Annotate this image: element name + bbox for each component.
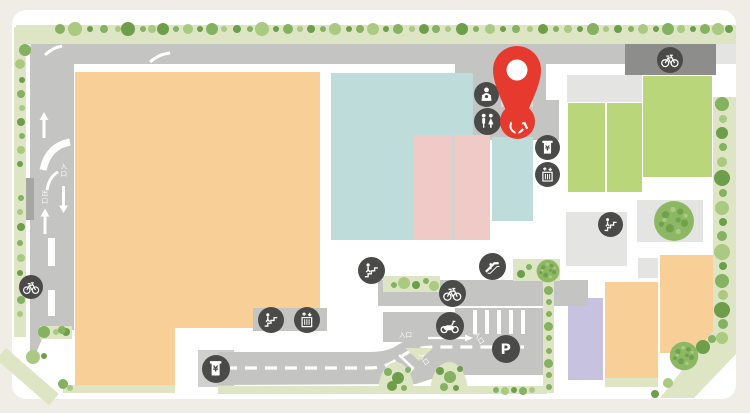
tree bbox=[307, 25, 315, 33]
tree bbox=[140, 26, 146, 32]
tree bbox=[17, 240, 23, 246]
tree bbox=[444, 371, 456, 383]
building-orange-2 bbox=[605, 282, 658, 378]
tree bbox=[273, 26, 279, 32]
escalator-icon[interactable] bbox=[479, 253, 506, 280]
tree bbox=[677, 25, 685, 33]
tree bbox=[708, 335, 716, 343]
tree bbox=[393, 24, 403, 34]
elevator-glyph bbox=[538, 165, 557, 184]
building-teal-2 bbox=[492, 137, 533, 221]
tree bbox=[714, 302, 730, 318]
tree bbox=[329, 23, 341, 35]
tree bbox=[719, 189, 727, 197]
location-pin[interactable] bbox=[489, 43, 545, 143]
motorcycle-icon[interactable] bbox=[436, 312, 464, 340]
tree bbox=[100, 25, 108, 33]
tree bbox=[719, 115, 727, 123]
tree bbox=[715, 274, 729, 288]
tree bbox=[320, 26, 326, 32]
tree bbox=[546, 335, 552, 341]
tree bbox=[367, 23, 379, 35]
atm-icon[interactable] bbox=[202, 355, 230, 383]
tree bbox=[529, 387, 535, 393]
stall-line bbox=[509, 310, 513, 334]
bicycle-icon[interactable] bbox=[657, 47, 683, 73]
atm-glyph bbox=[205, 358, 226, 379]
tree bbox=[440, 383, 448, 391]
tree bbox=[423, 278, 429, 284]
tree bbox=[638, 24, 648, 34]
tree bbox=[651, 390, 659, 398]
tree bbox=[501, 387, 509, 395]
tree bbox=[17, 118, 25, 126]
tree bbox=[700, 24, 710, 34]
building-gray-slab bbox=[567, 75, 642, 102]
tree bbox=[456, 23, 468, 35]
stairs-icon[interactable] bbox=[598, 212, 623, 237]
tree bbox=[15, 59, 25, 69]
tree bbox=[17, 270, 23, 276]
tree bbox=[500, 26, 506, 32]
tree bbox=[197, 26, 203, 32]
pin-icon bbox=[489, 43, 545, 139]
tree bbox=[67, 385, 73, 391]
parking-glyph bbox=[495, 338, 516, 359]
building-green-1 bbox=[568, 103, 605, 192]
elevator-glyph bbox=[297, 310, 317, 330]
tree bbox=[183, 24, 193, 34]
green-strip-under-orange2 bbox=[605, 378, 658, 387]
tree bbox=[405, 367, 411, 373]
stall-line bbox=[497, 310, 501, 334]
tree bbox=[603, 26, 609, 32]
tree bbox=[716, 127, 728, 139]
tree bbox=[546, 384, 552, 390]
tree bbox=[255, 22, 269, 36]
tree bbox=[473, 26, 479, 32]
tree bbox=[412, 281, 420, 289]
tree bbox=[436, 367, 444, 375]
tree bbox=[512, 25, 520, 33]
stairs-glyph bbox=[261, 310, 281, 330]
tree bbox=[719, 143, 727, 151]
tree bbox=[546, 299, 552, 305]
tree bbox=[17, 161, 23, 167]
tree bbox=[297, 26, 303, 32]
tree bbox=[719, 218, 727, 226]
tree bbox=[58, 326, 66, 334]
tree bbox=[19, 133, 25, 139]
tree bbox=[717, 157, 727, 167]
tree bbox=[690, 26, 696, 32]
tree bbox=[419, 24, 429, 34]
elevator-icon[interactable] bbox=[294, 307, 320, 333]
tree bbox=[716, 332, 728, 344]
tree bbox=[206, 23, 218, 35]
tree bbox=[526, 264, 532, 270]
bush-tree bbox=[669, 341, 699, 371]
tree bbox=[17, 311, 23, 317]
tree bbox=[401, 385, 407, 391]
tree bbox=[432, 25, 440, 33]
tree bbox=[553, 26, 559, 32]
tree bbox=[457, 366, 463, 372]
building-green-2 bbox=[607, 103, 642, 192]
tree bbox=[38, 326, 50, 338]
tree bbox=[718, 319, 728, 329]
tree bbox=[121, 22, 135, 36]
tree bbox=[41, 353, 47, 359]
parking-icon[interactable] bbox=[492, 335, 520, 363]
tree bbox=[538, 24, 548, 34]
tree bbox=[429, 281, 439, 291]
tree bbox=[587, 23, 599, 35]
tree bbox=[68, 22, 82, 36]
bicycle-glyph bbox=[442, 283, 463, 304]
motorcycle-glyph bbox=[439, 315, 460, 336]
tree bbox=[719, 262, 727, 270]
building-orange-3 bbox=[660, 255, 715, 353]
tree bbox=[546, 348, 552, 354]
tree bbox=[544, 322, 553, 331]
tree bbox=[398, 277, 410, 289]
tree bbox=[544, 286, 553, 295]
tree bbox=[383, 26, 389, 32]
tree bbox=[391, 282, 397, 288]
tree bbox=[17, 209, 23, 215]
tree bbox=[663, 378, 673, 388]
tree bbox=[17, 254, 25, 262]
road-label: 入口 bbox=[399, 332, 412, 339]
tree bbox=[55, 24, 65, 34]
elevator-icon[interactable] bbox=[535, 162, 560, 187]
building-pink-2 bbox=[454, 135, 490, 240]
tree bbox=[19, 44, 31, 56]
stall-line bbox=[485, 310, 489, 334]
building-orange-main-wing bbox=[75, 328, 175, 385]
building-pink-1 bbox=[414, 135, 452, 240]
tree bbox=[662, 23, 674, 35]
bush-tree bbox=[536, 259, 560, 283]
tree bbox=[718, 290, 728, 300]
tree bbox=[485, 24, 495, 34]
tree bbox=[221, 26, 227, 32]
building-orange-main-step bbox=[75, 310, 255, 328]
tree bbox=[356, 25, 364, 33]
tree bbox=[725, 25, 733, 33]
tree bbox=[445, 26, 451, 32]
tree bbox=[527, 26, 533, 32]
tree bbox=[87, 26, 93, 32]
bicycle-icon[interactable] bbox=[439, 280, 466, 307]
stairs-glyph bbox=[361, 260, 382, 281]
bicycle-glyph bbox=[22, 278, 40, 296]
stairs-icon[interactable] bbox=[358, 257, 385, 284]
tree bbox=[18, 195, 24, 201]
escalator-glyph bbox=[482, 256, 503, 277]
road-label: 出口 bbox=[40, 190, 47, 205]
tree bbox=[653, 26, 659, 32]
tree bbox=[546, 372, 552, 378]
tree bbox=[519, 387, 527, 395]
stall-line bbox=[521, 310, 525, 334]
tree bbox=[717, 231, 727, 241]
gray-square-1 bbox=[638, 258, 658, 278]
road-end-slab bbox=[716, 43, 736, 64]
tree bbox=[148, 25, 156, 33]
tree bbox=[409, 26, 415, 32]
tree bbox=[546, 311, 552, 317]
tree bbox=[17, 146, 25, 154]
tree bbox=[17, 90, 25, 98]
tree bbox=[715, 201, 729, 215]
building-orange-main bbox=[75, 72, 320, 310]
tree bbox=[517, 270, 525, 278]
tree bbox=[714, 170, 730, 186]
road-label: 入口 bbox=[59, 163, 66, 178]
tree bbox=[157, 23, 169, 35]
green-strip-under-wing bbox=[63, 385, 175, 393]
tree bbox=[614, 25, 622, 33]
building-green-3 bbox=[643, 76, 712, 177]
tree bbox=[233, 25, 241, 33]
tree bbox=[511, 387, 517, 393]
tree bbox=[544, 359, 553, 368]
tree bbox=[714, 244, 730, 260]
tree bbox=[577, 26, 583, 32]
building-purple bbox=[568, 298, 603, 380]
tree bbox=[384, 368, 392, 376]
tree bbox=[715, 97, 729, 111]
tree bbox=[26, 350, 40, 364]
facility-map: ¥ P bbox=[0, 0, 750, 413]
stairs-glyph bbox=[601, 215, 620, 234]
tree bbox=[628, 26, 634, 32]
tree bbox=[247, 26, 253, 32]
tree bbox=[712, 23, 724, 35]
tree bbox=[283, 24, 293, 34]
tree bbox=[173, 26, 179, 32]
tree bbox=[346, 26, 352, 32]
stairs-icon[interactable] bbox=[258, 307, 284, 333]
tree bbox=[17, 223, 25, 231]
bicycle-glyph bbox=[660, 50, 680, 70]
bicycle-icon[interactable] bbox=[19, 275, 43, 299]
tree bbox=[387, 381, 397, 391]
bush-tree bbox=[653, 200, 695, 242]
tree bbox=[19, 105, 25, 111]
gray-square-2 bbox=[600, 250, 616, 266]
stall-line bbox=[473, 310, 477, 334]
tree bbox=[493, 387, 499, 393]
tree bbox=[453, 385, 459, 391]
tree bbox=[564, 25, 572, 33]
tree bbox=[19, 77, 25, 83]
